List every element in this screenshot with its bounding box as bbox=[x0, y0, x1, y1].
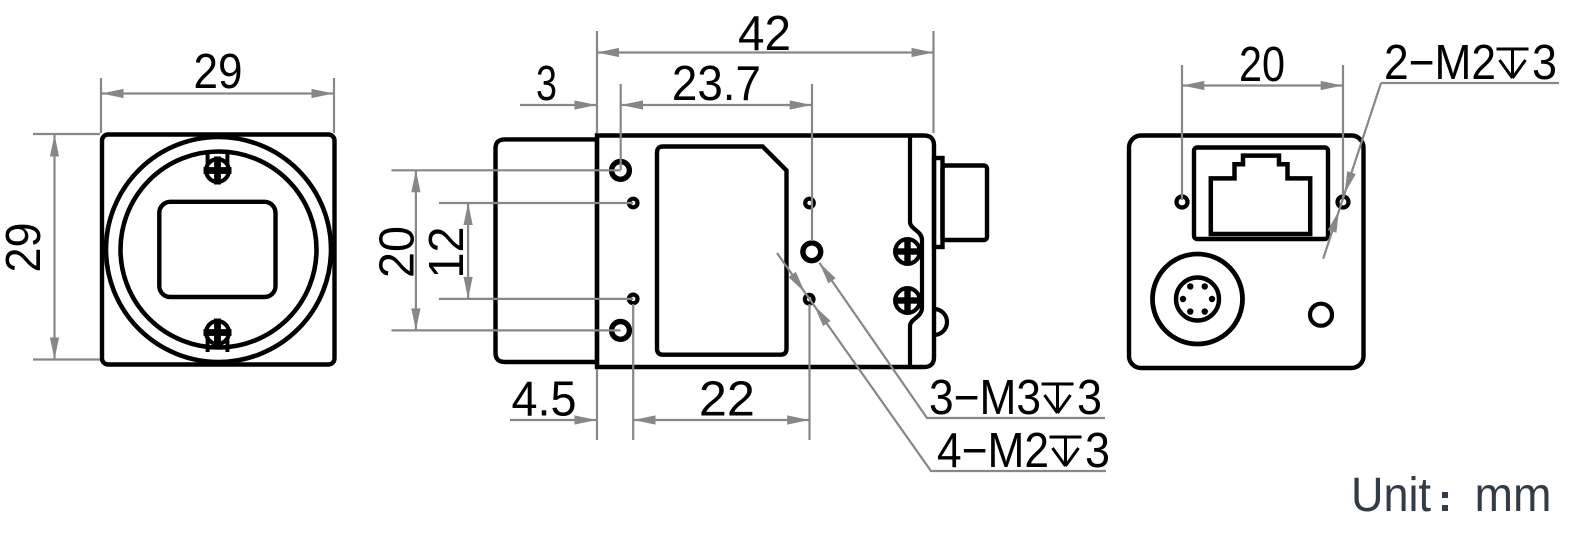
svg-text:29: 29 bbox=[194, 45, 243, 99]
svg-text:23.7: 23.7 bbox=[672, 57, 761, 111]
svg-text:4.5: 4.5 bbox=[512, 373, 577, 427]
svg-text:mm: mm bbox=[1475, 469, 1552, 522]
svg-text:3: 3 bbox=[536, 57, 557, 111]
svg-text:22: 22 bbox=[699, 373, 755, 427]
svg-text:3: 3 bbox=[1077, 371, 1102, 425]
svg-text:20: 20 bbox=[1239, 38, 1285, 92]
svg-text:Unit: Unit bbox=[1351, 469, 1431, 522]
svg-text:3−M3: 3−M3 bbox=[929, 371, 1041, 425]
svg-text:42: 42 bbox=[738, 7, 791, 61]
svg-text:3: 3 bbox=[1085, 424, 1110, 478]
svg-text:3: 3 bbox=[1532, 36, 1557, 90]
svg-text:29: 29 bbox=[0, 223, 51, 273]
svg-text:12: 12 bbox=[420, 227, 474, 279]
svg-text:2−M2: 2−M2 bbox=[1384, 36, 1496, 90]
svg-text:20: 20 bbox=[371, 226, 425, 278]
svg-text:4−M2: 4−M2 bbox=[937, 424, 1049, 478]
